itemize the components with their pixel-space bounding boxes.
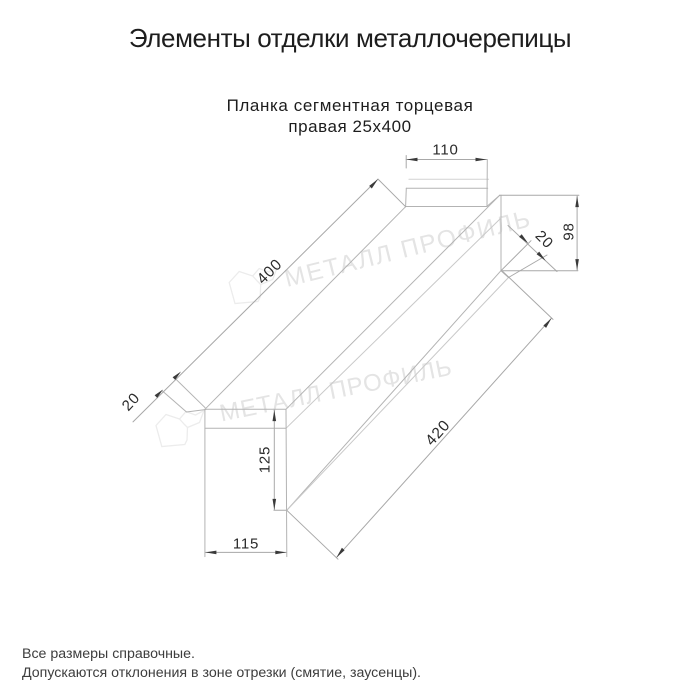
svg-text:20: 20 [532,227,557,252]
svg-text:98: 98 [561,222,578,240]
svg-text:115: 115 [233,536,259,553]
svg-text:МЕТАЛЛ ПРОФИЛЬ: МЕТАЛЛ ПРОФИЛЬ [282,205,535,293]
svg-text:110: 110 [432,142,458,159]
svg-text:420: 420 [422,417,454,449]
svg-text:20: 20 [119,389,144,414]
svg-text:МЕТАЛЛ ПРОФИЛЬ: МЕТАЛЛ ПРОФИЛЬ [217,354,455,428]
svg-text:125: 125 [257,446,274,473]
